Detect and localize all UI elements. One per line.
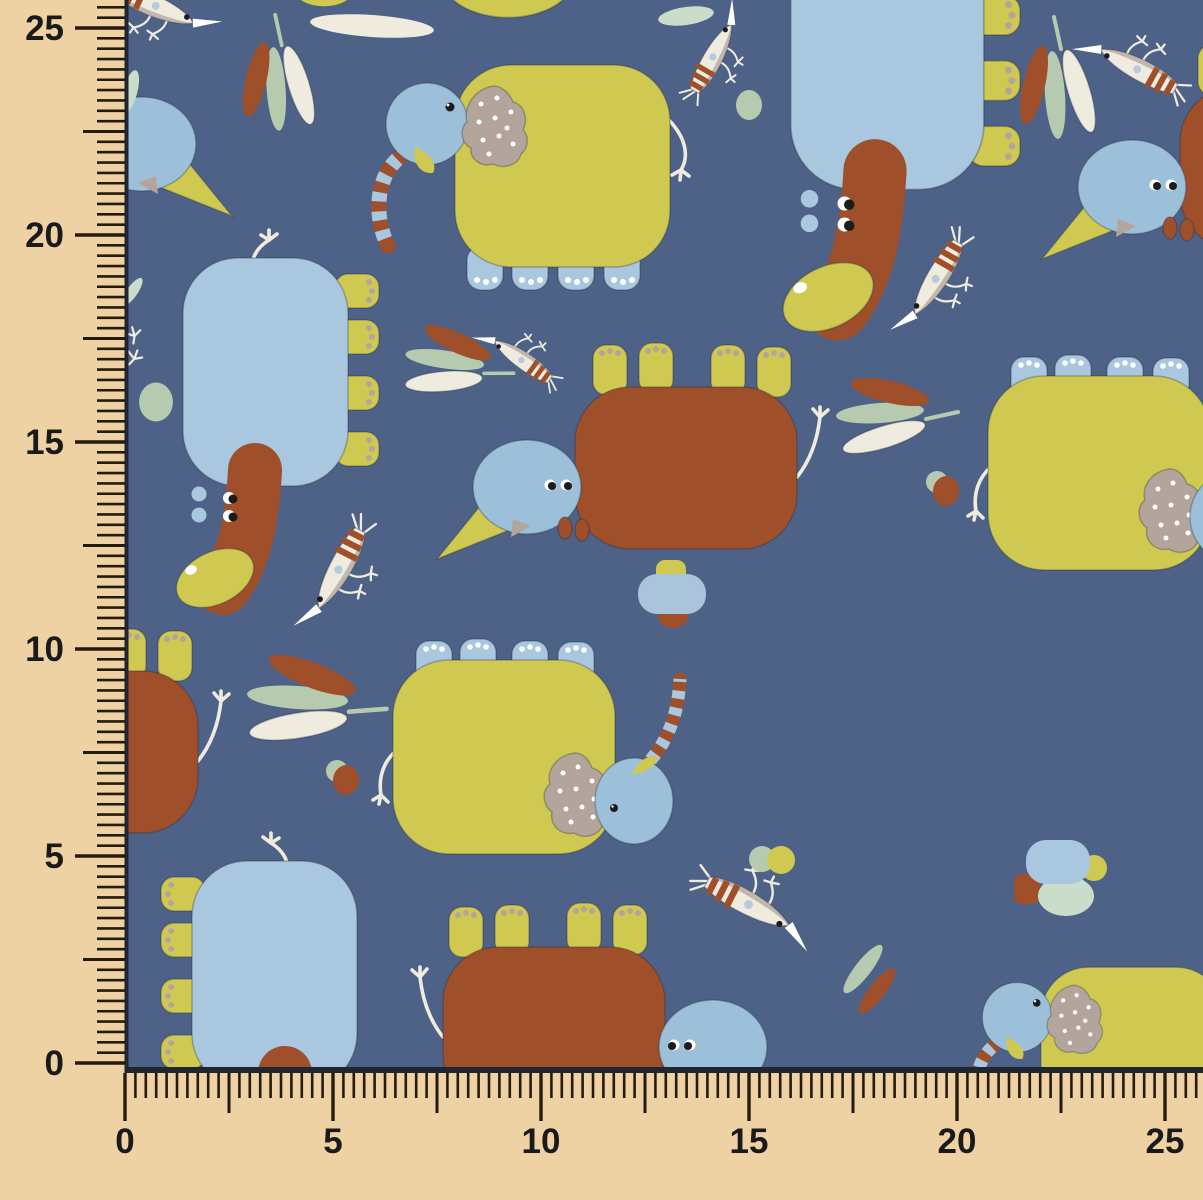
horizontal-ruler [125,1073,1196,1121]
horizontal-ruler-label: 10 [522,1122,561,1161]
vertical-ruler [75,7,125,1063]
horizontal-ruler-label: 25 [1146,1122,1185,1161]
vertical-ruler-label: 10 [25,630,64,669]
pebble [139,383,173,422]
fabric-swatch [125,0,1203,1070]
vertical-ruler-label: 5 [45,837,64,876]
vertical-ruler-label: 25 [25,9,64,48]
vertical-ruler-label: 0 [45,1044,64,1083]
pebble [736,90,762,120]
vertical-ruler-label: 15 [25,423,64,462]
pebble [749,846,795,874]
horizontal-ruler-label: 0 [115,1122,134,1161]
horizontal-ruler-label: 15 [730,1122,769,1161]
horizontal-ruler-label: 20 [938,1122,977,1161]
horizontal-ruler-label: 5 [323,1122,342,1161]
vertical-ruler-label: 20 [25,216,64,255]
fabric-product-photo: 2520151050 0510152025 [0,0,1203,1200]
